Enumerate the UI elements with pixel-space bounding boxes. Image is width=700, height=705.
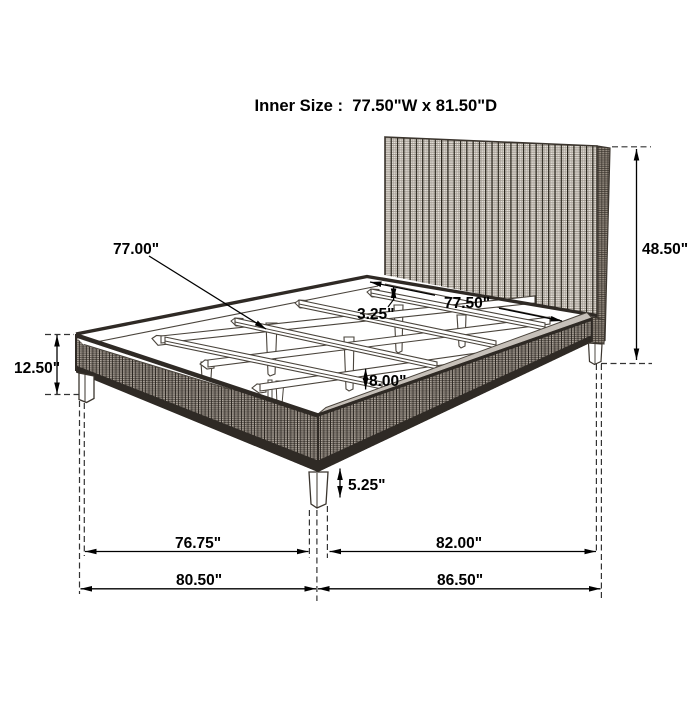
- svg-text:76.75": 76.75": [175, 535, 221, 552]
- svg-text:5.25": 5.25": [348, 477, 386, 494]
- svg-text:12.50": 12.50": [14, 360, 60, 377]
- svg-text:48.50": 48.50": [642, 241, 688, 258]
- svg-text:3.25": 3.25": [357, 306, 395, 323]
- svg-text:77.50": 77.50": [444, 295, 490, 312]
- svg-text:8.00": 8.00": [369, 373, 407, 390]
- svg-text:80.50": 80.50": [176, 572, 222, 589]
- svg-text:82.00": 82.00": [436, 535, 482, 552]
- svg-text:Inner Size : 77.50"W x 81.50": Inner Size : 77.50"W x 81.50"D: [255, 96, 498, 115]
- svg-text:86.50": 86.50": [437, 572, 483, 589]
- svg-text:77.00": 77.00": [113, 241, 159, 258]
